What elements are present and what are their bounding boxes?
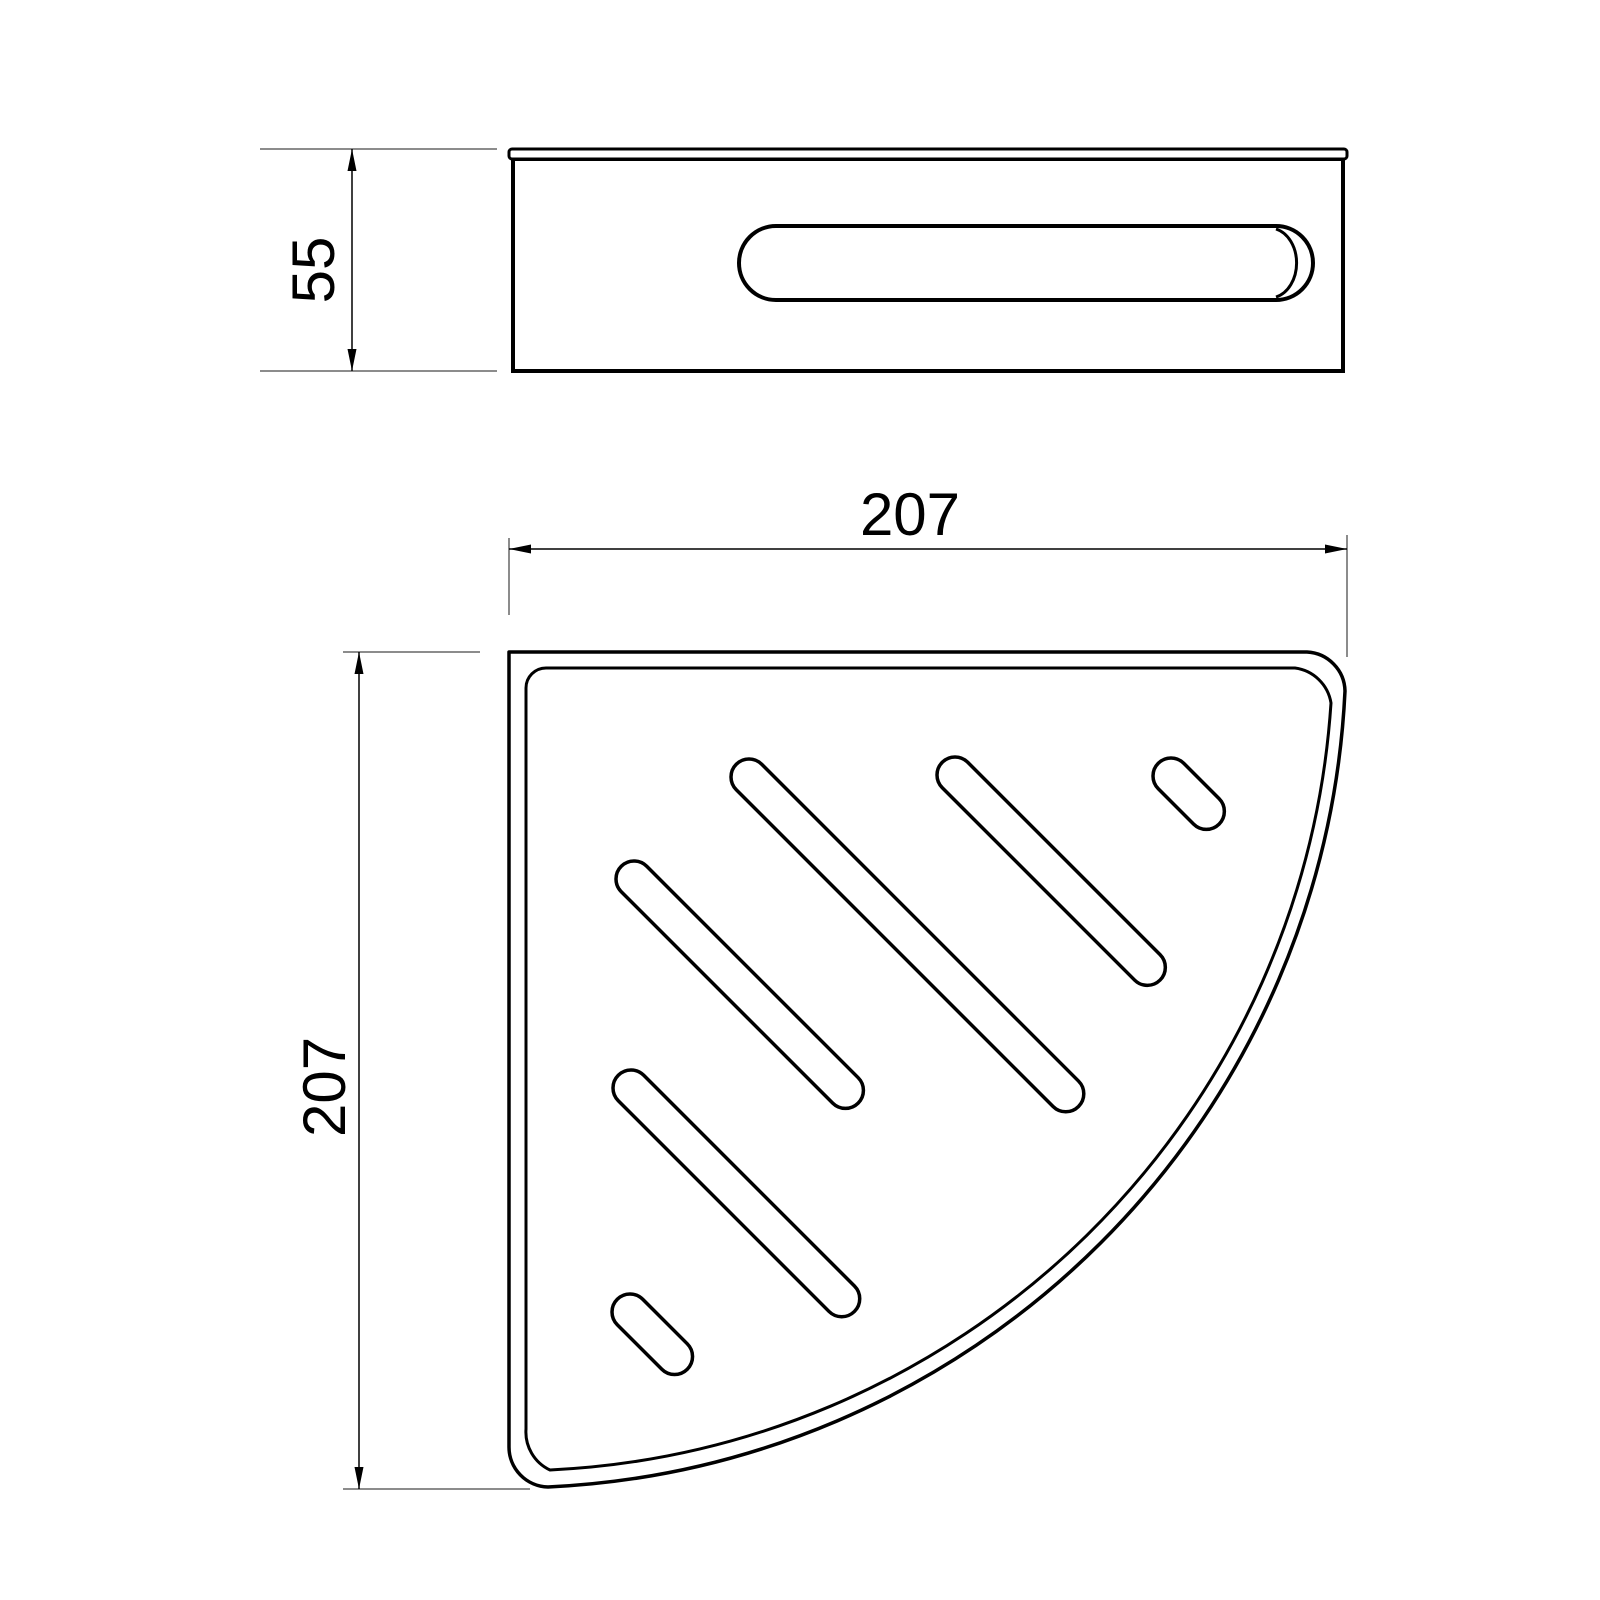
plan-height-dimension: 207: [291, 652, 530, 1489]
arrow-left-icon: [509, 545, 531, 554]
side-view-top-lip: [509, 149, 1347, 159]
side-elevation-view: [509, 149, 1347, 371]
arrow-down-icon: [355, 1467, 364, 1489]
side-height-dimension: 55: [260, 149, 497, 371]
side-view-slot: [739, 226, 1313, 300]
plan-height-label: 207: [291, 1037, 358, 1137]
plan-width-label: 207: [860, 481, 960, 548]
arrow-right-icon: [1325, 545, 1347, 554]
arrow-up-icon: [348, 149, 357, 171]
arrow-down-icon: [348, 349, 357, 371]
technical-drawing: 55 207: [0, 0, 1600, 1600]
drawing-canvas: 55 207: [0, 0, 1600, 1600]
plan-width-dimension: 207: [509, 481, 1347, 657]
plan-view: [509, 652, 1345, 1487]
side-height-label: 55: [280, 237, 347, 304]
arrow-up-icon: [355, 652, 364, 674]
